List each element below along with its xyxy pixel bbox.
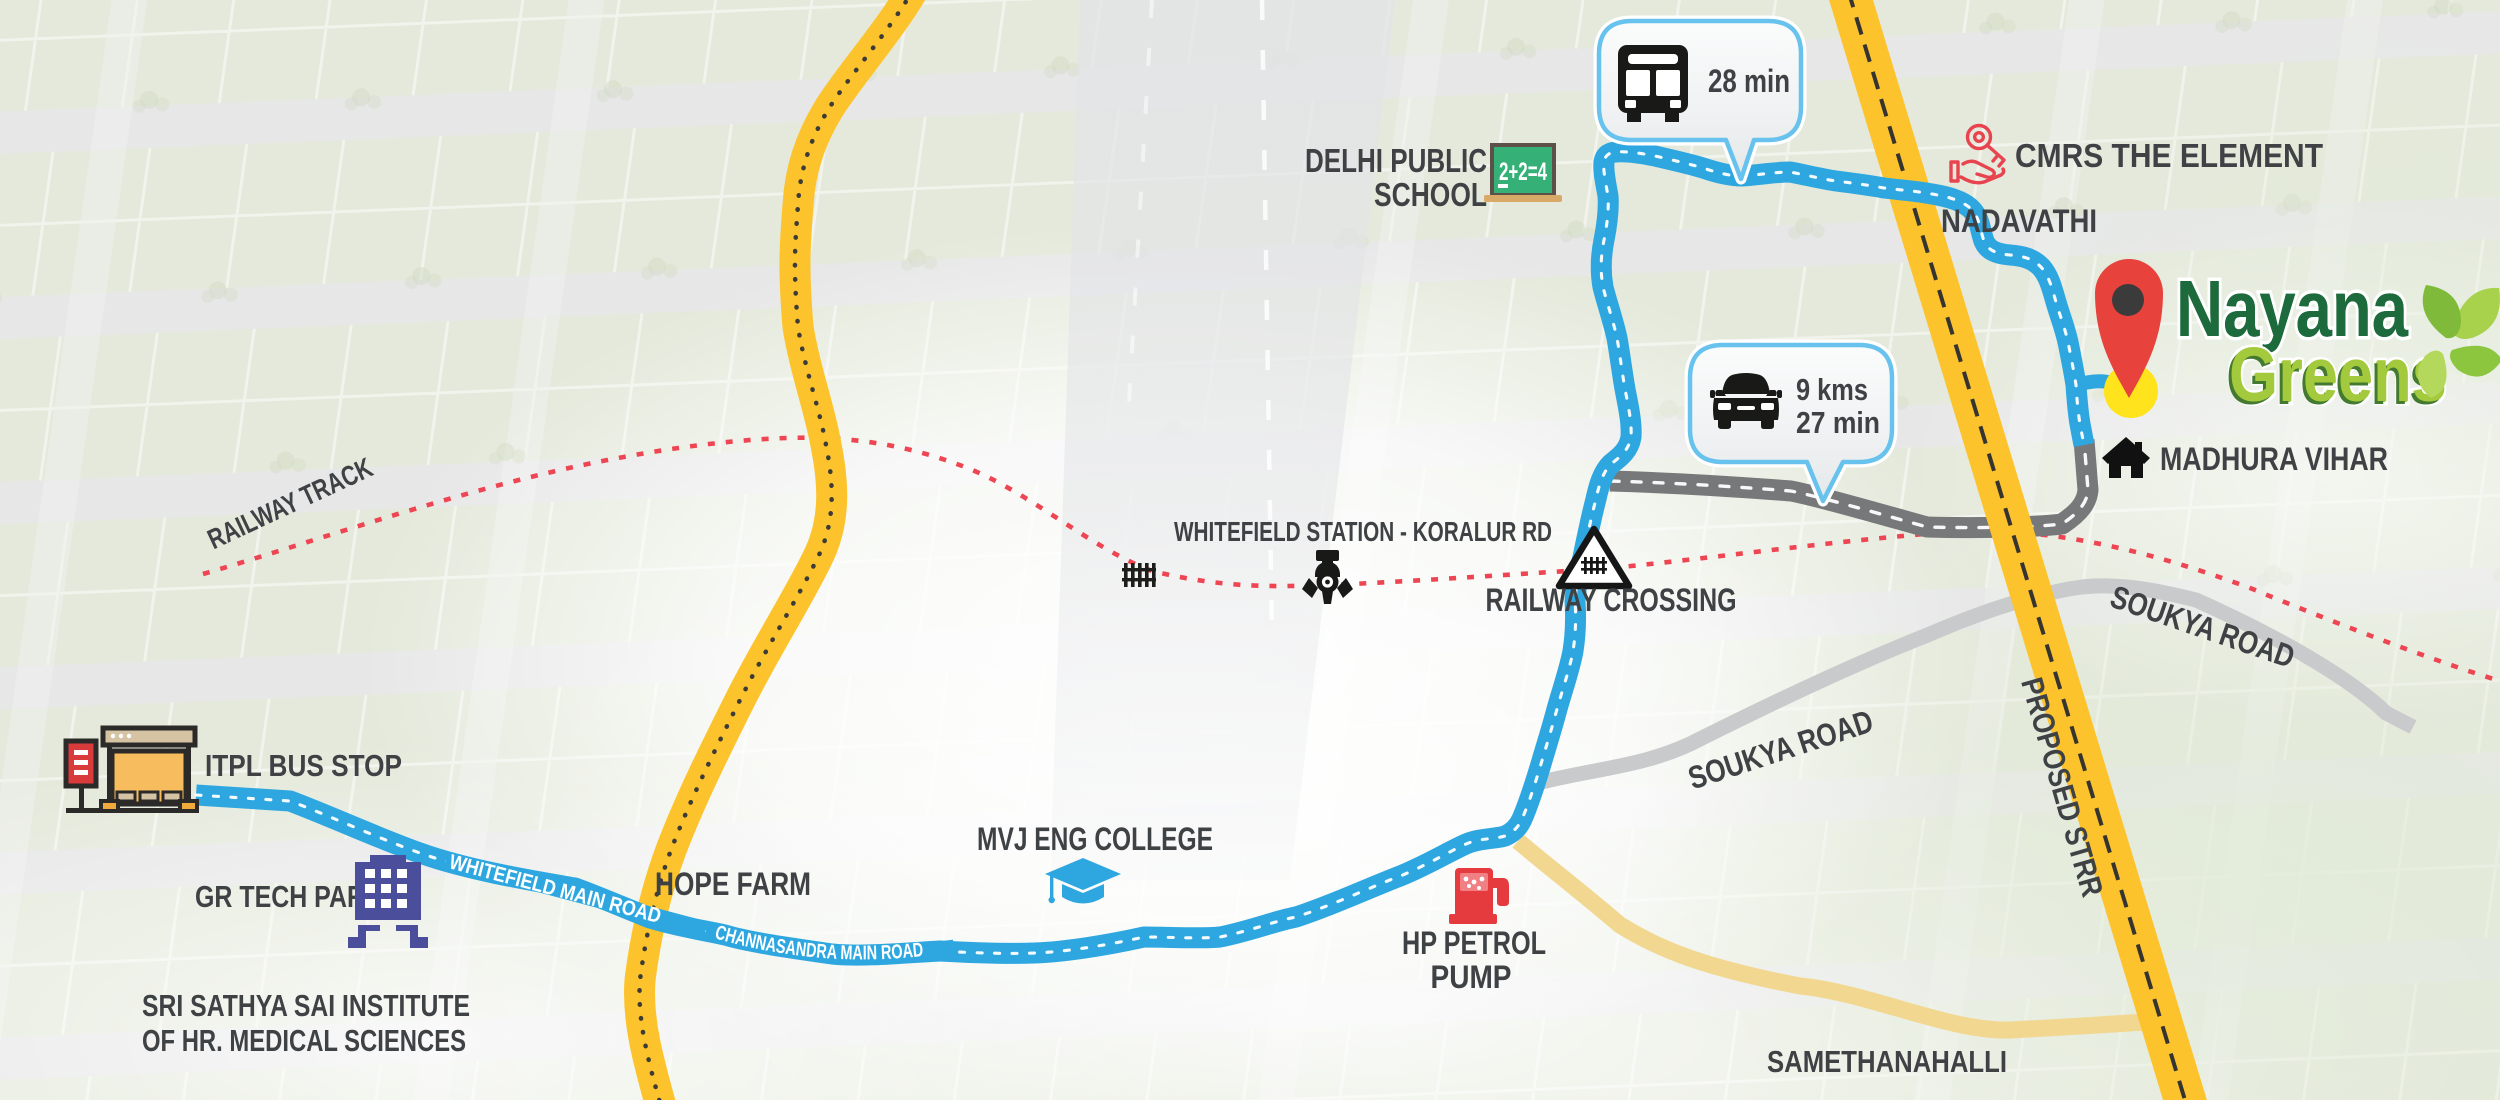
svg-text:Greens: Greens — [2229, 332, 2447, 418]
svg-text:PUMP: PUMP — [1431, 959, 1512, 995]
svg-text:CMRS THE ELEMENT: CMRS THE ELEMENT — [2015, 137, 2323, 174]
svg-text:RAILWAY CROSSING: RAILWAY CROSSING — [1486, 582, 1737, 618]
svg-text:27 min: 27 min — [1796, 405, 1880, 440]
svg-text:MADHURA VIHAR: MADHURA VIHAR — [2160, 441, 2388, 477]
svg-text:SRI SATHYA SAI INSTITUTE: SRI SATHYA SAI INSTITUTE — [142, 988, 470, 1023]
svg-text:HP PETROL: HP PETROL — [1402, 925, 1546, 961]
svg-text:HOPE FARM: HOPE FARM — [655, 866, 811, 902]
svg-text:ITPL BUS STOP: ITPL BUS STOP — [205, 748, 402, 783]
svg-text:NADAVATHI: NADAVATHI — [1941, 203, 2097, 239]
svg-text:2+2=4: 2+2=4 — [1499, 158, 1547, 186]
svg-text:28 min: 28 min — [1708, 63, 1790, 99]
svg-text:OF HR. MEDICAL SCIENCES: OF HR. MEDICAL SCIENCES — [142, 1023, 466, 1058]
svg-text:DELHI PUBLIC: DELHI PUBLIC — [1305, 142, 1487, 179]
svg-text:WHITEFIELD STATION - KORALUR R: WHITEFIELD STATION - KORALUR RD — [1174, 516, 1552, 547]
svg-text:SAMETHANAHALLI: SAMETHANAHALLI — [1767, 1044, 2007, 1079]
svg-text:MVJ ENG COLLEGE: MVJ ENG COLLEGE — [977, 821, 1213, 857]
svg-text:SCHOOL: SCHOOL — [1374, 176, 1487, 213]
svg-text:9 kms: 9 kms — [1796, 372, 1868, 407]
